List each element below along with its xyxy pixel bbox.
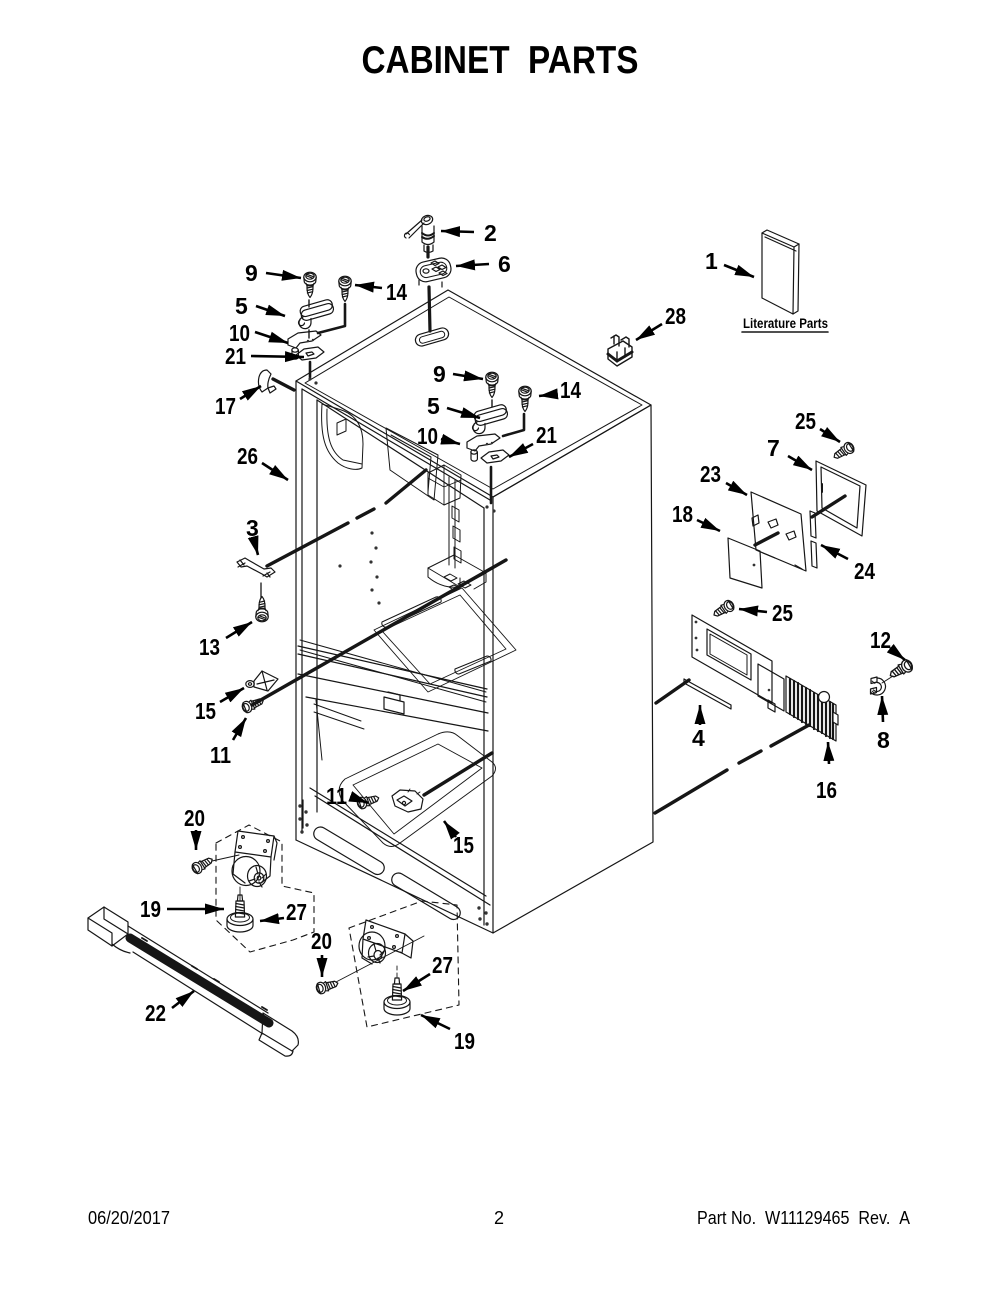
- svg-text:17: 17: [215, 393, 236, 419]
- svg-text:1: 1: [705, 248, 718, 274]
- svg-text:9: 9: [245, 260, 258, 286]
- svg-text:25: 25: [772, 600, 793, 626]
- svg-text:13: 13: [199, 634, 220, 660]
- svg-text:2: 2: [484, 220, 497, 246]
- svg-text:8: 8: [877, 727, 890, 753]
- svg-text:14: 14: [560, 377, 581, 403]
- svg-text:5: 5: [427, 393, 440, 419]
- svg-text:27: 27: [432, 952, 453, 978]
- svg-text:14: 14: [386, 279, 407, 305]
- svg-text:16: 16: [816, 777, 837, 803]
- svg-text:18: 18: [672, 501, 693, 527]
- svg-text:6: 6: [498, 251, 511, 277]
- svg-text:11: 11: [326, 783, 347, 809]
- svg-text:15: 15: [195, 698, 216, 724]
- svg-text:06/20/2017: 06/20/2017: [88, 1208, 170, 1228]
- svg-text:25: 25: [795, 408, 816, 434]
- svg-text:21: 21: [225, 343, 246, 369]
- svg-text:23: 23: [700, 461, 721, 487]
- svg-text:21: 21: [536, 422, 557, 448]
- svg-text:19: 19: [140, 896, 161, 922]
- svg-text:20: 20: [311, 928, 332, 954]
- svg-text:12: 12: [870, 627, 891, 653]
- svg-text:22: 22: [145, 1000, 166, 1026]
- svg-text:3: 3: [246, 515, 259, 541]
- svg-text:10: 10: [417, 423, 438, 449]
- svg-text:7: 7: [767, 435, 780, 461]
- svg-text:Part No. W11129465 Rev. A: Part No. W11129465 Rev. A: [697, 1208, 910, 1228]
- svg-text:28: 28: [665, 303, 686, 329]
- svg-text:19: 19: [454, 1028, 475, 1054]
- svg-text:11: 11: [210, 742, 231, 768]
- svg-text:24: 24: [854, 558, 875, 584]
- svg-text:5: 5: [235, 293, 248, 319]
- svg-text:20: 20: [184, 805, 205, 831]
- svg-text:4: 4: [692, 725, 705, 751]
- svg-text:2: 2: [494, 1208, 504, 1228]
- svg-text:26: 26: [237, 443, 258, 469]
- svg-text:9: 9: [433, 361, 446, 387]
- svg-text:CABINET PARTS: CABINET PARTS: [362, 39, 639, 82]
- svg-text:27: 27: [286, 899, 307, 925]
- svg-text:Literature Parts: Literature Parts: [743, 316, 828, 331]
